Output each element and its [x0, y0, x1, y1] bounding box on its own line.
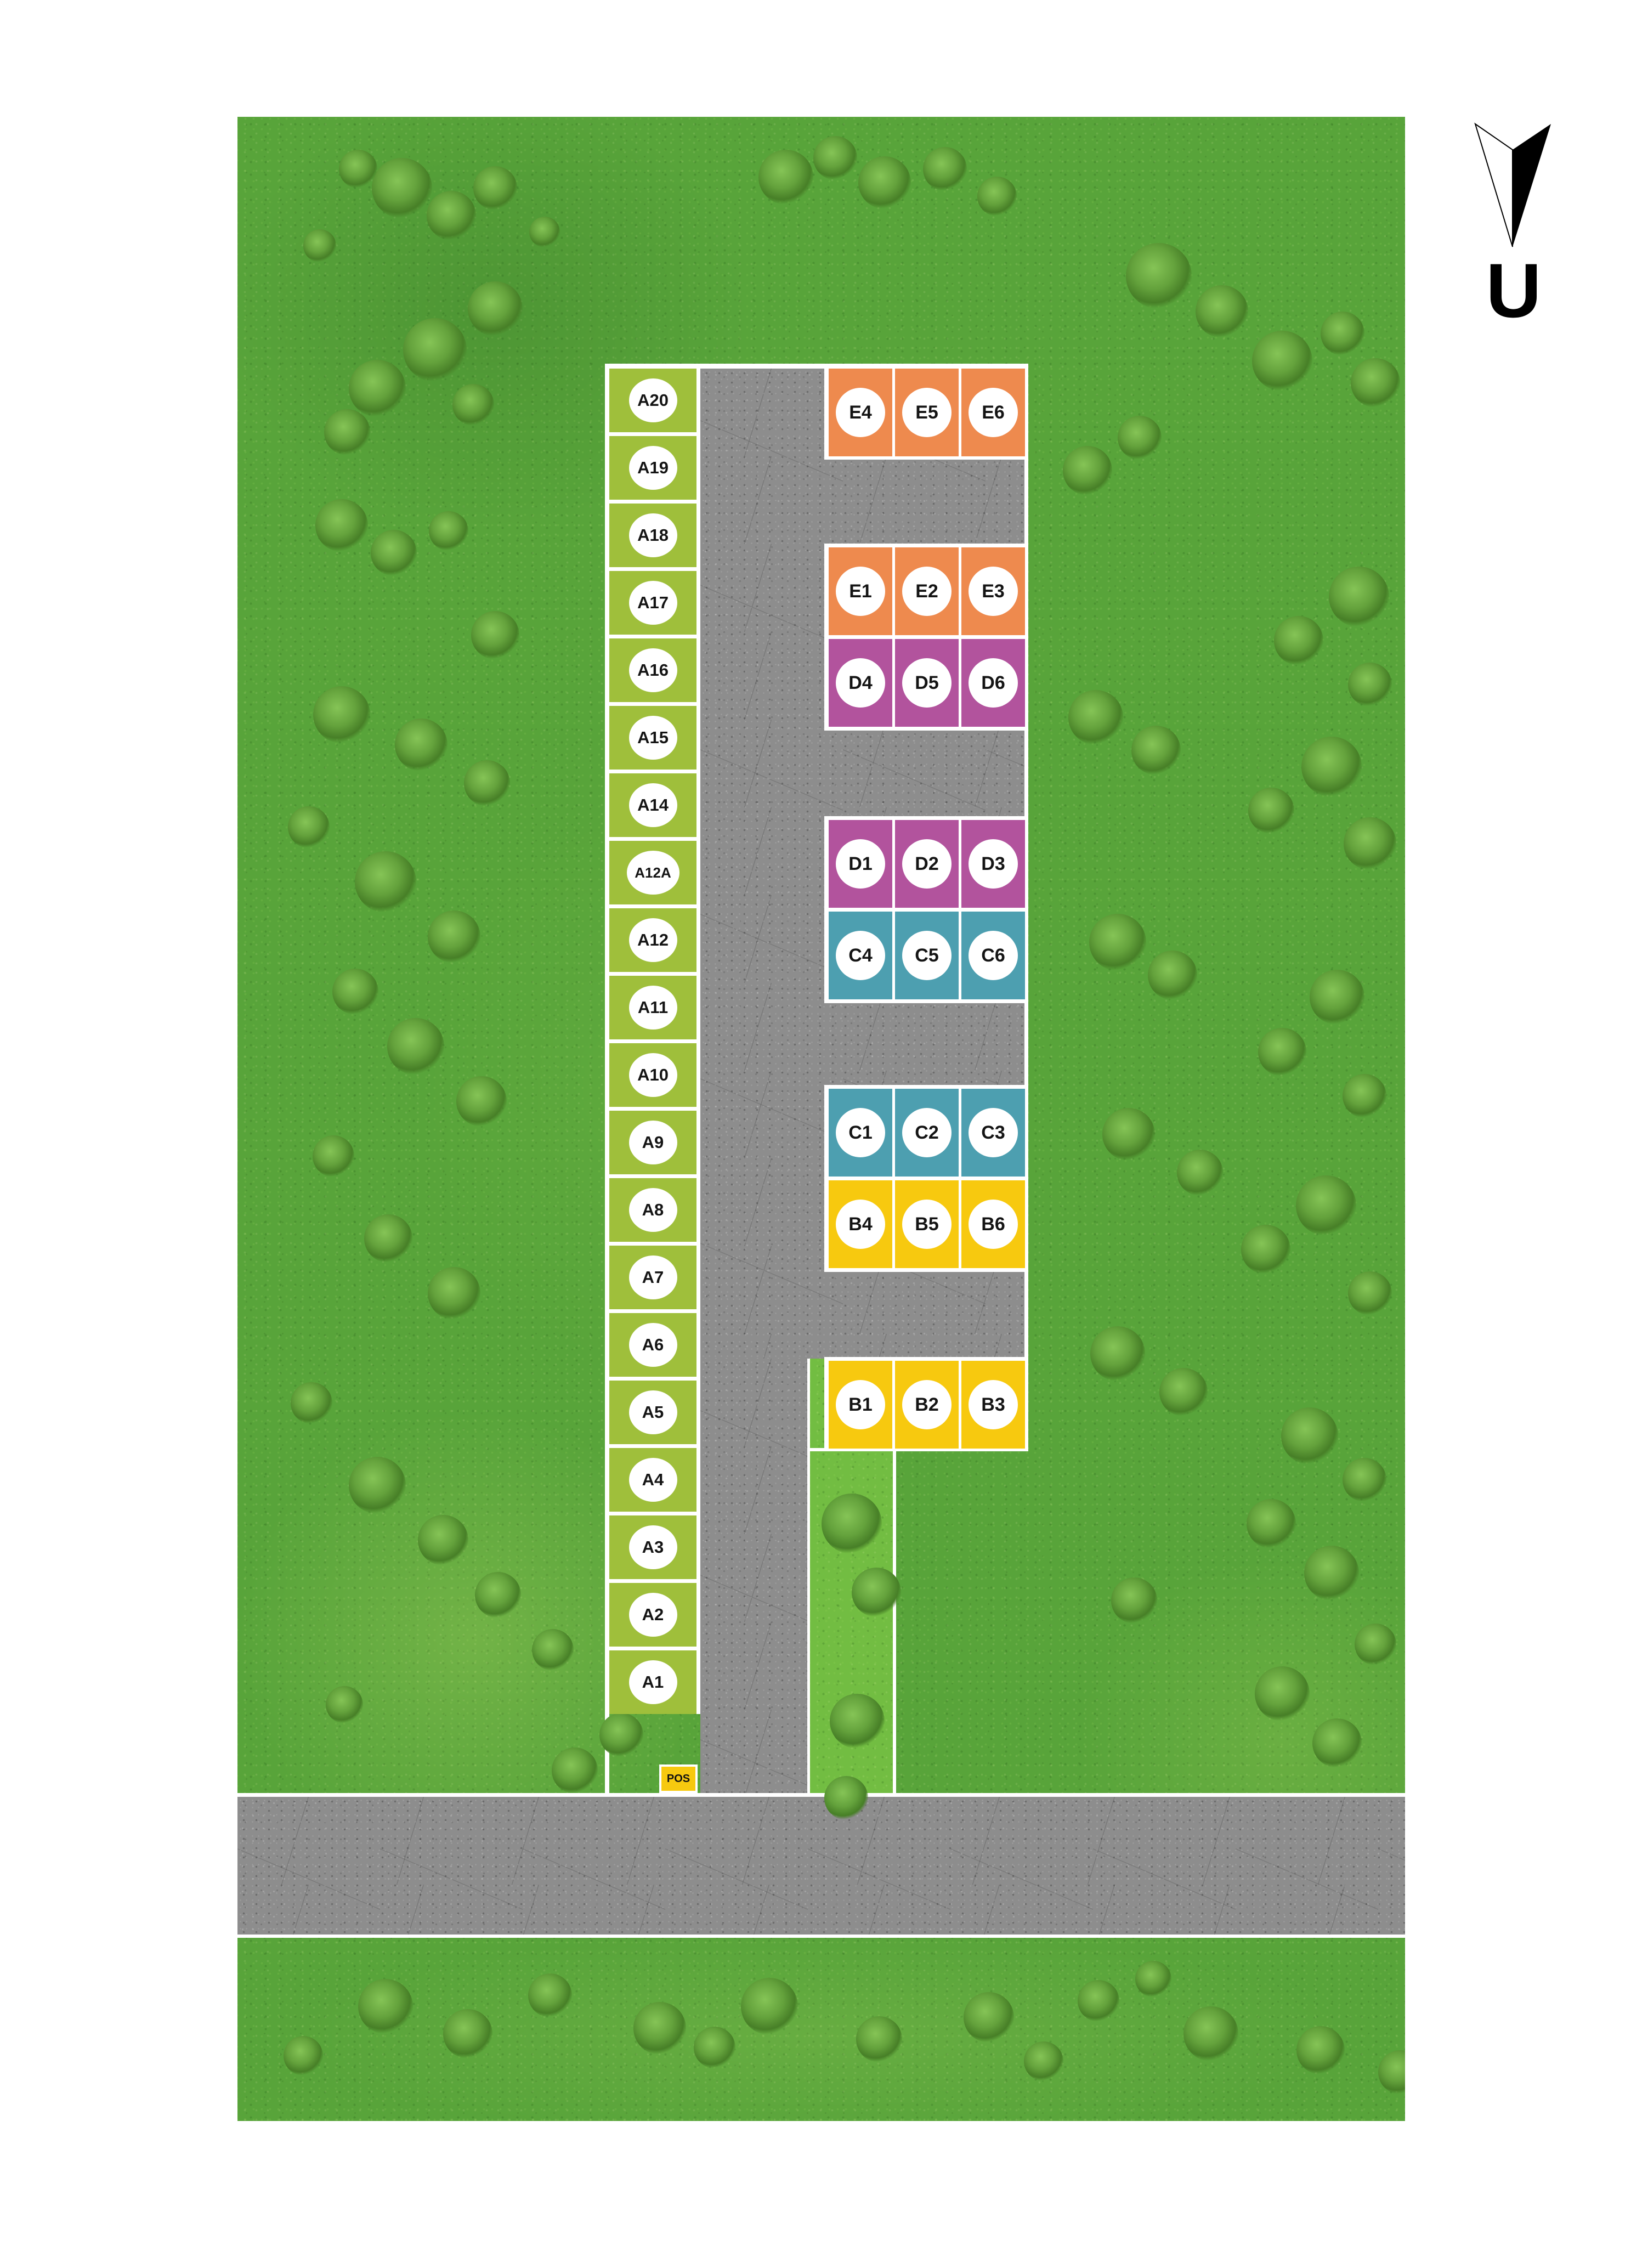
block-e1-d6: E1E2E3D4D5D6	[824, 544, 1028, 731]
plot-B6[interactable]: B6	[961, 1180, 1025, 1268]
plot-label: D5	[902, 658, 952, 708]
plot-label: B5	[902, 1200, 952, 1249]
plot-C4[interactable]: C4	[829, 912, 892, 999]
plot-label: E4	[836, 388, 885, 437]
block-c1-b6: C1C2C3B4B5B6	[824, 1085, 1028, 1272]
plot-E5[interactable]: E5	[895, 369, 959, 456]
plot-D1[interactable]: D1	[829, 820, 892, 908]
plot-D5[interactable]: D5	[895, 639, 959, 727]
plot-E2[interactable]: E2	[895, 547, 959, 635]
plot-label: C1	[836, 1108, 885, 1157]
plot-C6[interactable]: C6	[961, 912, 1025, 999]
block-d1-c6: D1D2D3C4C5C6	[824, 816, 1028, 1003]
north-arrow-icon	[1470, 120, 1558, 251]
plot-label: E5	[902, 388, 952, 437]
plot-B2[interactable]: B2	[895, 1361, 959, 1449]
plot-label: D6	[969, 658, 1018, 708]
plot-C1[interactable]: C1	[829, 1089, 892, 1177]
plot-E6[interactable]: E6	[961, 369, 1025, 456]
plot-D2[interactable]: D2	[895, 820, 959, 908]
plot-B1[interactable]: B1	[829, 1361, 892, 1449]
plot-E4[interactable]: E4	[829, 369, 892, 456]
plot-label: C6	[969, 931, 1018, 980]
plot-label: D2	[902, 839, 952, 889]
plot-label: B3	[969, 1380, 1018, 1429]
plot-label: D4	[836, 658, 885, 708]
plot-B3[interactable]: B3	[961, 1361, 1025, 1449]
plot-label: C2	[902, 1108, 952, 1157]
plot-C3[interactable]: C3	[961, 1089, 1025, 1177]
plot-label: B4	[836, 1200, 885, 1249]
block-b1-b3: B1B2B3	[824, 1357, 1028, 1451]
plot-label: B6	[969, 1200, 1018, 1249]
plot-B4[interactable]: B4	[829, 1180, 892, 1268]
plot-E1[interactable]: E1	[829, 547, 892, 635]
plot-label: C3	[969, 1108, 1018, 1157]
plot-D3[interactable]: D3	[961, 820, 1025, 908]
plot-label: E2	[902, 567, 952, 616]
plot-label: E6	[969, 388, 1018, 437]
plot-D4[interactable]: D4	[829, 639, 892, 727]
pos-marker[interactable]: POS	[659, 1764, 698, 1793]
compass: U	[1470, 120, 1558, 329]
plot-label: B1	[836, 1380, 885, 1429]
pos-label: POS	[667, 1773, 690, 1785]
plot-C2[interactable]: C2	[895, 1089, 959, 1177]
plot-B5[interactable]: B5	[895, 1180, 959, 1268]
plot-label: D1	[836, 839, 885, 889]
plot-label: D3	[969, 839, 1018, 889]
plot-label: B2	[902, 1380, 952, 1429]
plot-label: C4	[836, 931, 885, 980]
plot-label: E3	[969, 567, 1018, 616]
site-plan-map: A20A19A18A17A16A15A14A12AA12A11A10A9A8A7…	[237, 117, 1405, 2121]
plot-E3[interactable]: E3	[961, 547, 1025, 635]
plot-C5[interactable]: C5	[895, 912, 959, 999]
plot-label: C5	[902, 931, 952, 980]
north-label: U	[1470, 252, 1558, 329]
right-plot-blocks: E4E5E6E1E2E3D4D5D6D1D2D3C4C5C6C1C2C3B4B5…	[237, 117, 1405, 2121]
plot-label: E1	[836, 567, 885, 616]
block-e4-e6: E4E5E6	[824, 364, 1028, 460]
plot-D6[interactable]: D6	[961, 639, 1025, 727]
